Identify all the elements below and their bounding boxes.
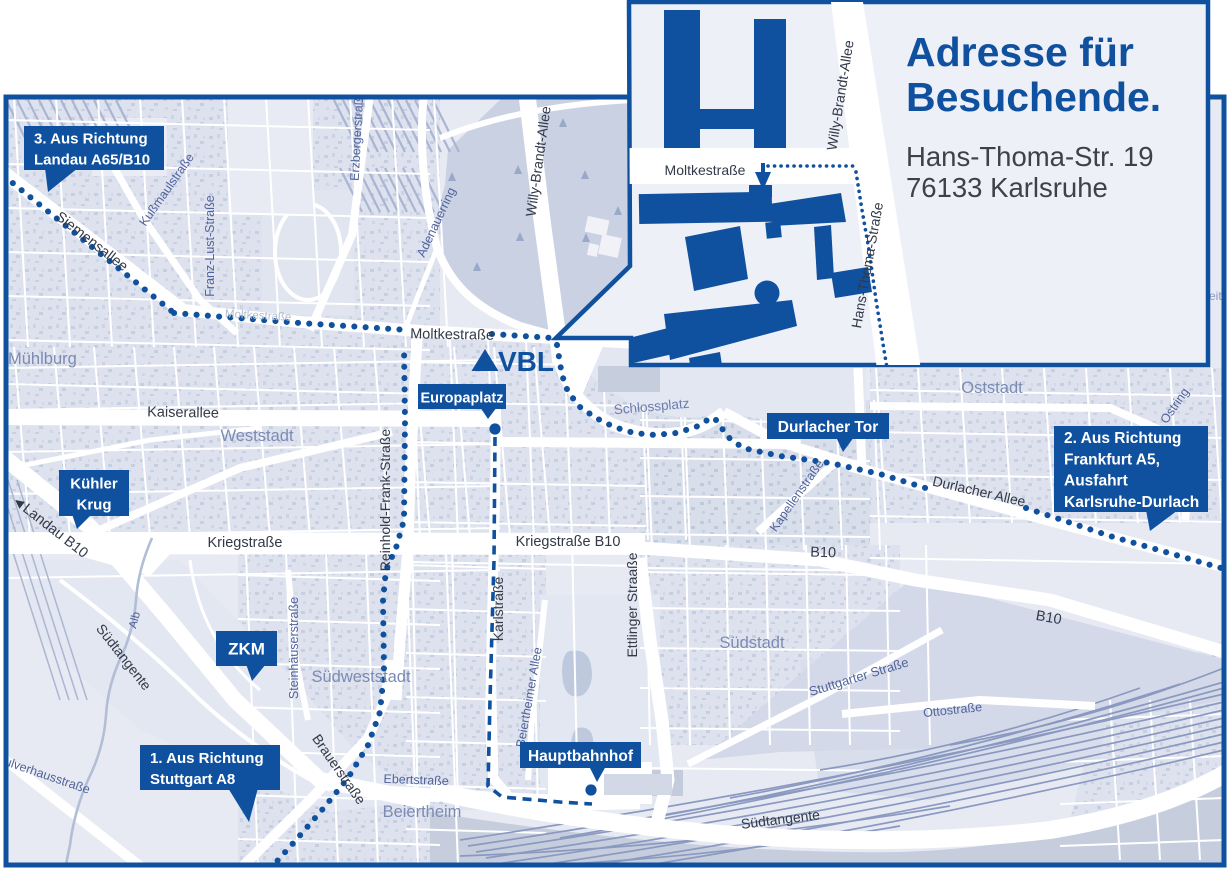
svg-text:Franz-Lust-Straße: Franz-Lust-Straße — [203, 195, 217, 296]
svg-text:Kriegstraße: Kriegstraße — [208, 535, 283, 551]
svg-text:Kühler: Kühler — [70, 475, 118, 492]
svg-text:Europaplatz: Europaplatz — [421, 390, 504, 406]
svg-text:Besuchende.: Besuchende. — [906, 74, 1161, 120]
svg-text:Weststadt: Weststadt — [220, 427, 293, 445]
svg-text:Karlstraße: Karlstraße — [490, 577, 506, 642]
svg-text:Oststadt: Oststadt — [961, 379, 1023, 397]
svg-text:Landau A65/B10: Landau A65/B10 — [34, 151, 150, 168]
svg-text:Adresse für: Adresse für — [906, 29, 1134, 75]
svg-text:Kaiserallee: Kaiserallee — [147, 404, 219, 421]
svg-text:Kriegstraße B10: Kriegstraße B10 — [516, 534, 621, 550]
svg-text:Mühlburg: Mühlburg — [8, 350, 77, 368]
svg-text:Hauptbahnhof: Hauptbahnhof — [528, 748, 634, 765]
svg-text:ZKM: ZKM — [228, 639, 265, 658]
svg-text:Steinhäuserstraße: Steinhäuserstraße — [287, 597, 301, 699]
svg-text:Beiertheim: Beiertheim — [383, 803, 462, 821]
svg-text:Ausfahrt: Ausfahrt — [1064, 473, 1128, 490]
svg-text:2. Aus Richtung: 2. Aus Richtung — [1064, 430, 1181, 447]
svg-text:Südweststadt: Südweststadt — [311, 668, 410, 686]
svg-text:3. Aus Richtung: 3. Aus Richtung — [34, 130, 148, 147]
svg-text:Hans-Thoma-Str. 19: Hans-Thoma-Str. 19 — [906, 141, 1154, 172]
svg-text:Reinhold-Frank-Straße: Reinhold-Frank-Straße — [377, 429, 393, 572]
svg-text:1. Aus Richtung: 1. Aus Richtung — [150, 750, 264, 767]
svg-text:Ettlinger Straaße: Ettlinger Straaße — [624, 552, 640, 657]
svg-text:eit: eit — [1209, 289, 1222, 303]
svg-text:Frankfurt A5,: Frankfurt A5, — [1064, 451, 1160, 468]
svg-text:Krug: Krug — [77, 496, 112, 513]
svg-text:Stuttgart A8: Stuttgart A8 — [150, 771, 235, 788]
svg-text:Moltkestraße: Moltkestraße — [665, 162, 746, 178]
svg-text:Durlacher Tor: Durlacher Tor — [778, 419, 879, 436]
svg-text:Südstadt: Südstadt — [719, 634, 785, 652]
svg-text:Ebertstraße: Ebertstraße — [383, 772, 449, 788]
svg-text:Karlsruhe-Durlach: Karlsruhe-Durlach — [1064, 494, 1199, 511]
svg-text:B10: B10 — [810, 545, 836, 562]
svg-text:VBL: VBL — [498, 346, 554, 377]
svg-text:Moltkestraße: Moltkestraße — [410, 326, 494, 343]
svg-text:76133 Karlsruhe: 76133 Karlsruhe — [906, 172, 1108, 203]
